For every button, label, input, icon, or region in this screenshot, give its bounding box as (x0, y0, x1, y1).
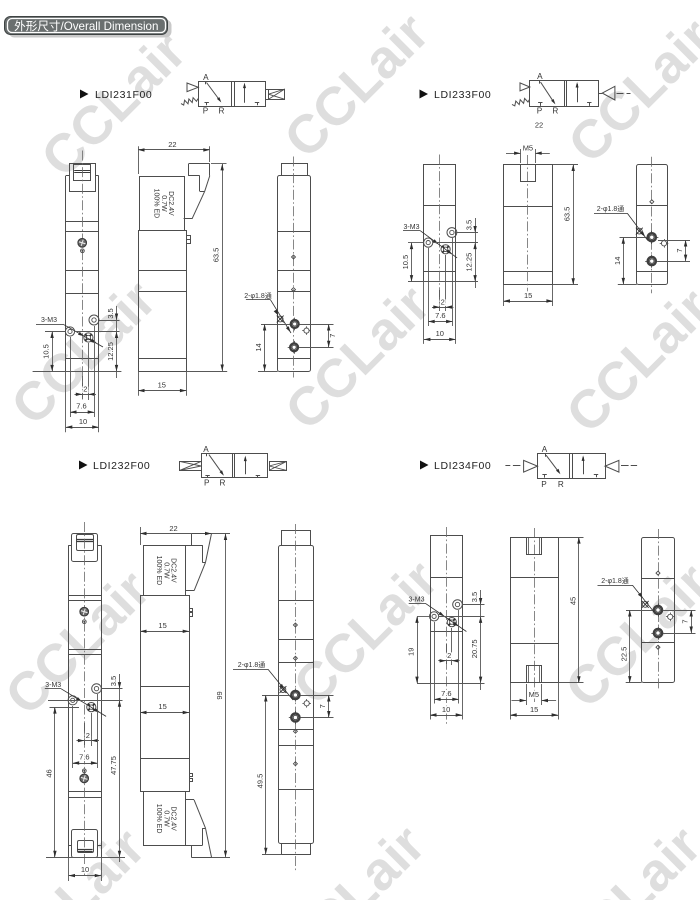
svg-text:0.7W: 0.7W (162, 810, 169, 827)
svg-text:0.7W: 0.7W (160, 195, 167, 212)
svg-text:7: 7 (675, 248, 684, 252)
svg-text:3.5: 3.5 (109, 676, 118, 686)
svg-text:45: 45 (568, 597, 577, 605)
svg-text:63.5: 63.5 (212, 248, 221, 263)
svg-text:R: R (558, 480, 564, 489)
svg-text:47.75: 47.75 (109, 756, 118, 775)
svg-text:99: 99 (215, 691, 224, 699)
svg-text:10: 10 (436, 329, 444, 338)
svg-text:2: 2 (441, 297, 445, 306)
svg-text:22: 22 (535, 121, 543, 130)
svg-text:46: 46 (44, 769, 53, 777)
svg-text:R: R (219, 478, 225, 487)
svg-text:DC2.4V: DC2.4V (170, 806, 177, 831)
svg-text:14: 14 (613, 257, 622, 265)
svg-text:3-M3: 3-M3 (409, 597, 425, 604)
svg-text:外形尺寸/Overall Dimension: 外形尺寸/Overall Dimension (14, 19, 158, 33)
svg-text:7.6: 7.6 (76, 402, 86, 411)
svg-text:2-φ1.8通: 2-φ1.8通 (238, 660, 266, 669)
svg-text:10.5: 10.5 (42, 344, 51, 359)
svg-text:LDI234F00: LDI234F00 (434, 460, 491, 472)
svg-text:2: 2 (447, 651, 451, 660)
svg-text:49.5: 49.5 (255, 774, 264, 789)
svg-text:2: 2 (86, 731, 90, 740)
svg-text:10: 10 (81, 865, 89, 874)
svg-text:A: A (203, 73, 209, 82)
svg-text:7: 7 (681, 619, 690, 623)
svg-text:15: 15 (158, 702, 166, 711)
svg-text:LDI232F00: LDI232F00 (93, 460, 150, 472)
svg-text:M5: M5 (523, 144, 533, 153)
svg-text:DC2.4V: DC2.4V (170, 558, 177, 583)
svg-text:7: 7 (328, 334, 337, 338)
svg-text:P: P (537, 107, 543, 116)
svg-text:2-φ1.8通: 2-φ1.8通 (601, 576, 629, 585)
svg-text:7.6: 7.6 (441, 689, 451, 698)
svg-text:7: 7 (318, 704, 327, 708)
svg-text:2: 2 (83, 385, 87, 394)
svg-text:A: A (542, 445, 548, 454)
svg-text:12.25: 12.25 (465, 253, 474, 272)
svg-text:2-φ1.8通: 2-φ1.8通 (597, 204, 625, 213)
svg-text:3.5: 3.5 (465, 220, 474, 230)
svg-text:7.6: 7.6 (79, 753, 89, 762)
svg-text:15: 15 (158, 621, 166, 630)
svg-text:3-M3: 3-M3 (41, 317, 57, 324)
svg-text:100% ED: 100% ED (153, 189, 160, 219)
svg-text:M5: M5 (529, 690, 539, 699)
svg-text:12.25: 12.25 (106, 342, 115, 361)
svg-text:LDI233F00: LDI233F00 (434, 89, 491, 101)
svg-text:10.5: 10.5 (401, 255, 410, 270)
svg-text:2-φ1.8通: 2-φ1.8通 (244, 291, 272, 300)
svg-text:63.5: 63.5 (563, 207, 572, 222)
svg-text:R: R (219, 107, 225, 116)
svg-text:7.6: 7.6 (435, 311, 445, 320)
svg-text:3-M3: 3-M3 (45, 682, 61, 689)
svg-text:0.7W: 0.7W (162, 562, 169, 579)
svg-text:10: 10 (442, 705, 450, 714)
svg-text:19: 19 (407, 648, 416, 656)
svg-text:20.75: 20.75 (470, 639, 479, 658)
svg-text:15: 15 (530, 705, 538, 714)
svg-text:10: 10 (79, 417, 87, 426)
svg-text:LDI231F00: LDI231F00 (95, 89, 152, 101)
svg-text:22.5: 22.5 (619, 647, 628, 662)
svg-text:DC2.4V: DC2.4V (167, 191, 174, 216)
svg-text:14: 14 (254, 343, 263, 351)
svg-text:3.5: 3.5 (470, 592, 479, 602)
svg-text:22: 22 (168, 140, 176, 149)
svg-text:3.5: 3.5 (106, 308, 115, 318)
svg-text:A: A (203, 445, 209, 454)
svg-text:15: 15 (158, 381, 166, 390)
svg-text:100% ED: 100% ED (155, 804, 162, 834)
svg-text:P: P (541, 480, 547, 489)
svg-text:15: 15 (524, 291, 532, 300)
svg-text:R: R (552, 107, 558, 116)
svg-text:P: P (204, 478, 210, 487)
svg-text:100% ED: 100% ED (155, 556, 162, 586)
svg-text:P: P (203, 107, 209, 116)
svg-text:A: A (537, 72, 543, 81)
svg-text:22: 22 (169, 524, 177, 533)
